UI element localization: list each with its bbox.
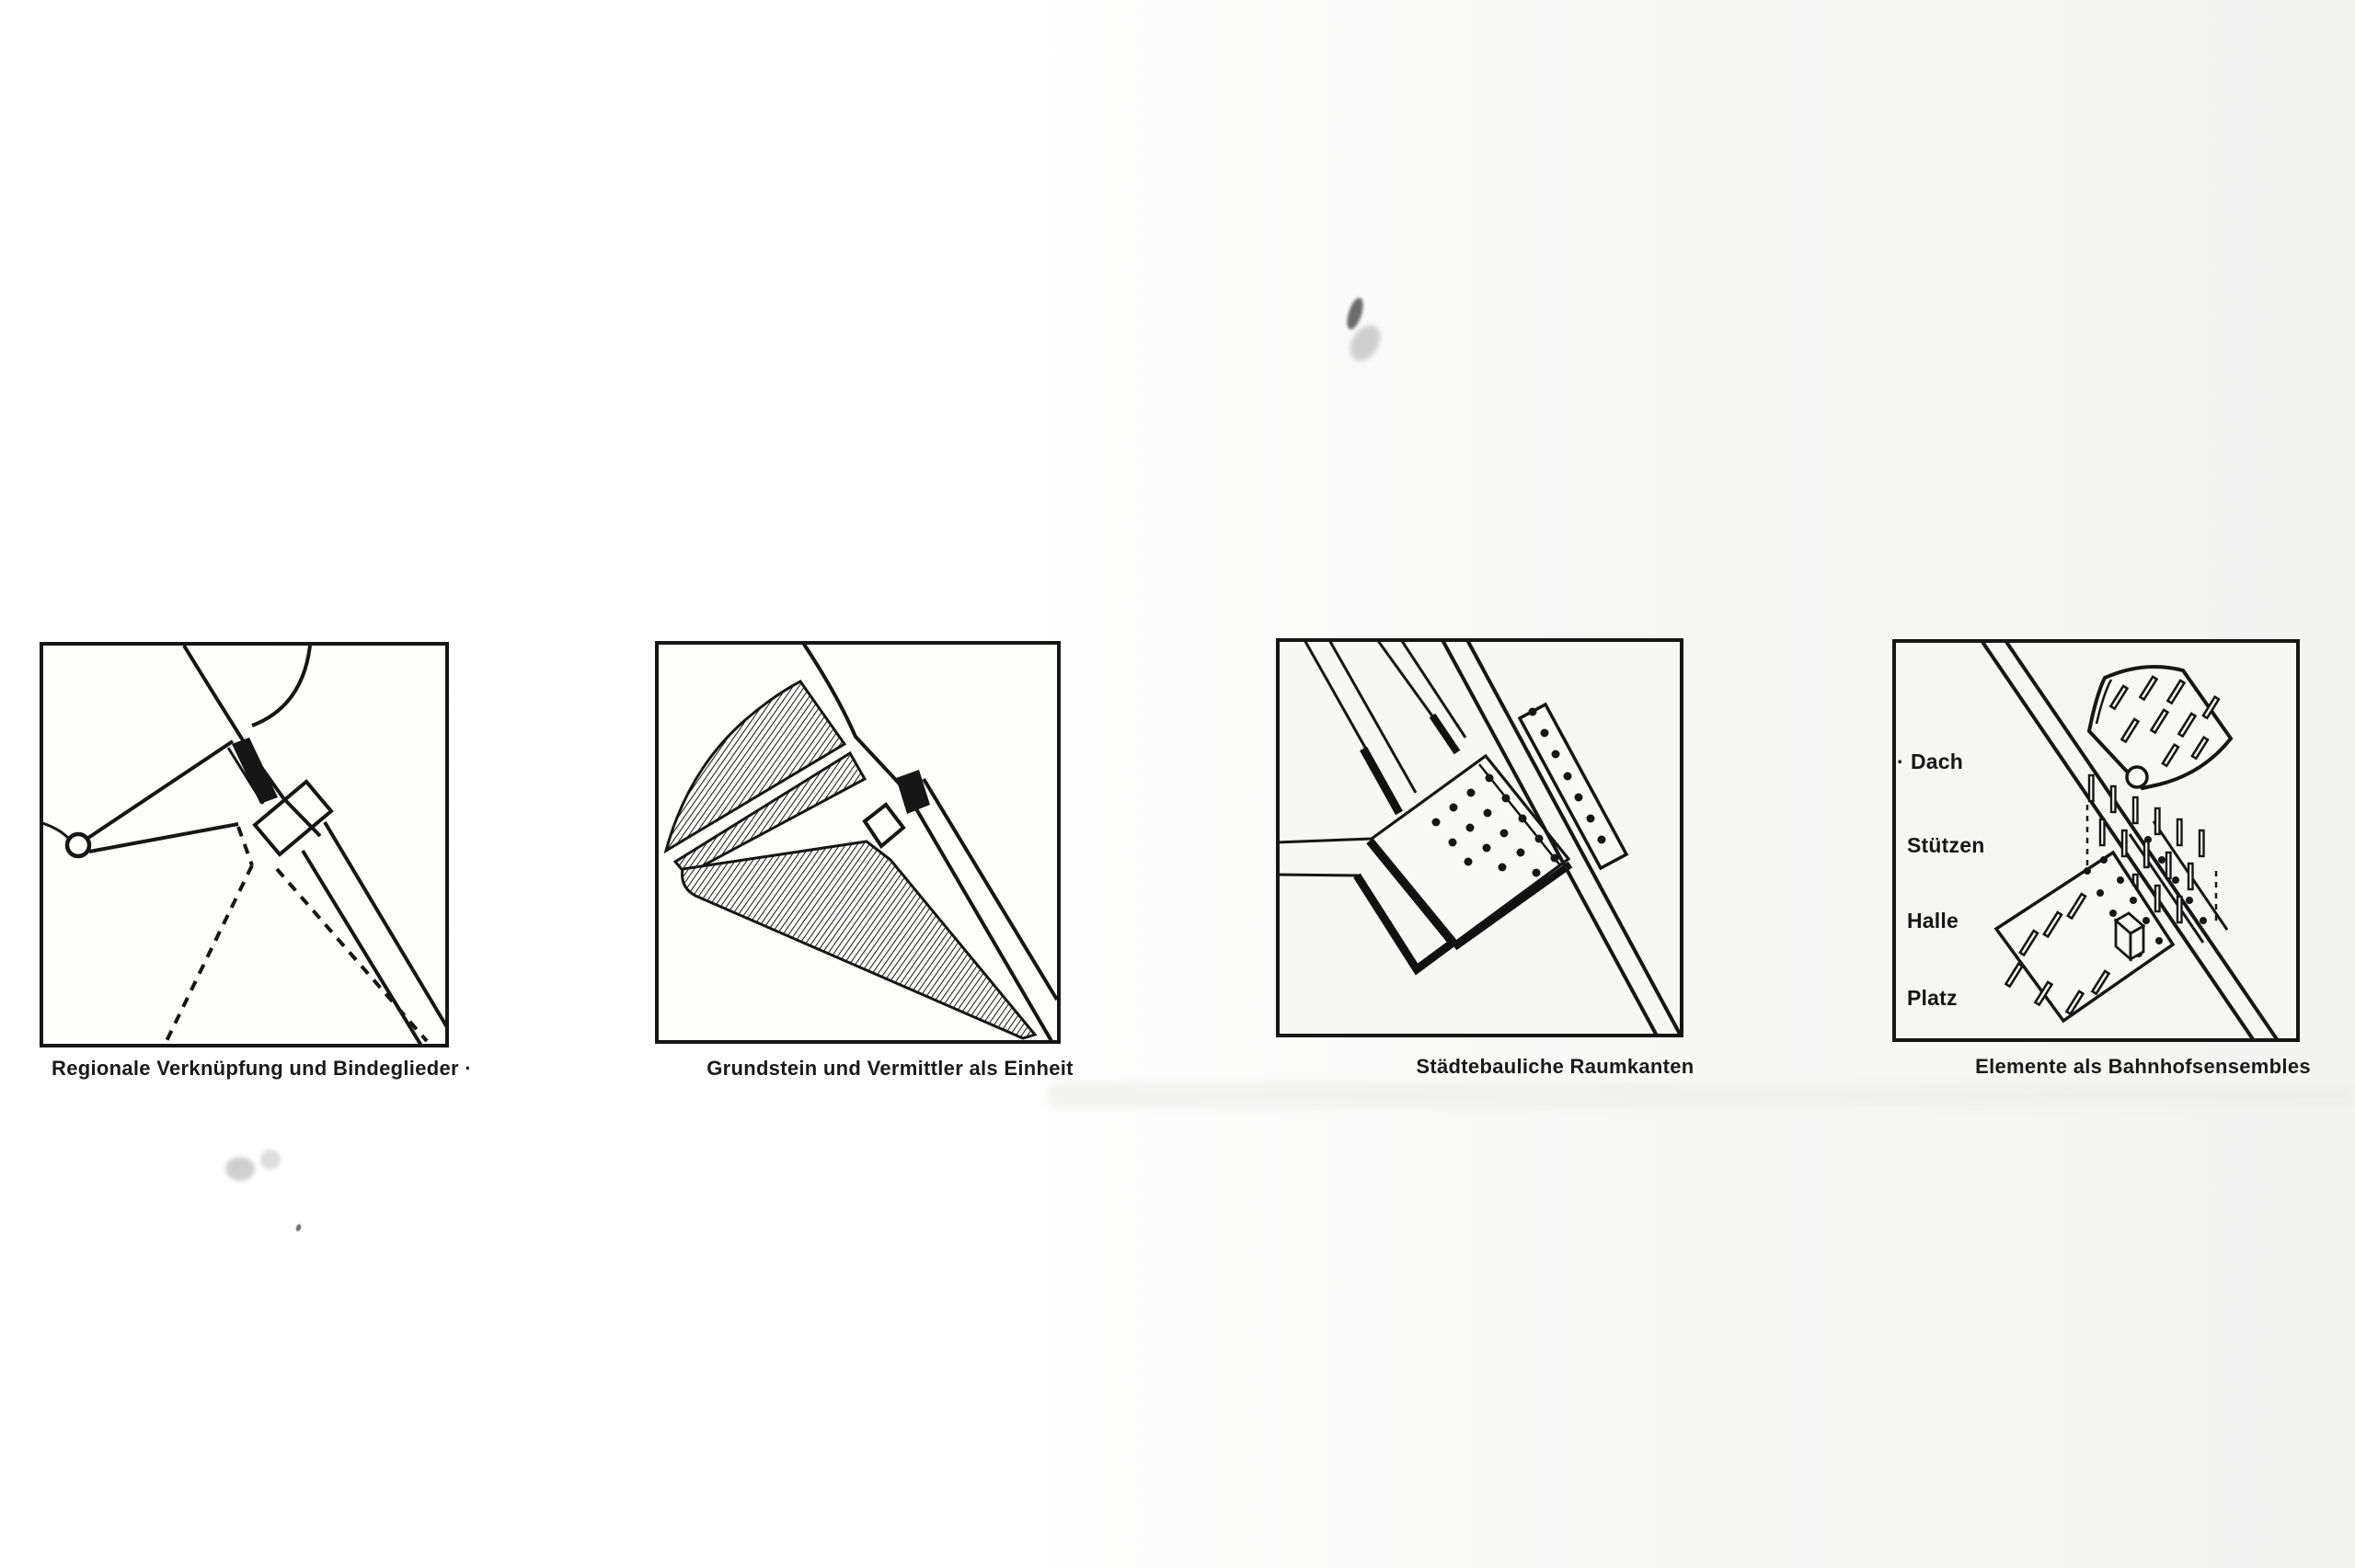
dach-bullet: · [1897,750,1904,774]
grundstein-diagram [655,641,1061,1044]
label-platz: Platz [1907,986,1958,1011]
scan-band [1049,1083,2355,1107]
label-dach: Dach [1911,750,1963,774]
photo-smudge-gray-1 [225,1157,255,1181]
scanned-diagram-sheet: Regionale Verknüpfung und Bindeglieder ·… [0,0,2355,1568]
caption-grundstein: Grundstein und Vermittler als Einheit [685,1057,1095,1081]
label-stuetzen: Stützen [1907,833,1984,858]
raumkanten-diagram [1276,638,1683,1037]
photo-smudge-gray-2 [260,1150,281,1170]
photo-speck [295,1223,302,1231]
caption-elemente: Elemente als Bahnhofsensembles [1938,1055,2348,1079]
photo-smudge-tail [1344,320,1386,366]
caption-raumkanten: Städtebauliche Raumkanten [1350,1055,1760,1079]
photo-smudge-dark [1344,296,1366,332]
label-halle: Halle [1907,909,1959,933]
regional-linkage-diagram [40,642,449,1047]
caption-regionale: Regionale Verknüpfung und Bindeglieder · [52,1057,461,1081]
